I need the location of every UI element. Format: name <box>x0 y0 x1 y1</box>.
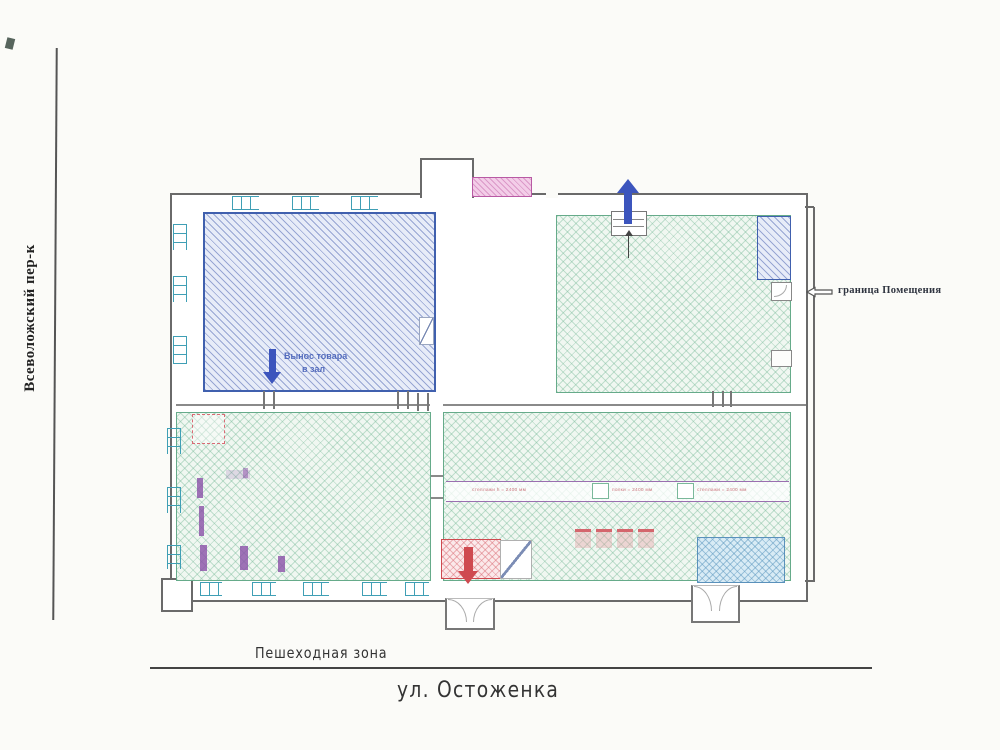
room-sales-top-right <box>556 215 791 393</box>
window-icon <box>173 224 187 250</box>
boundary-arrow-icon <box>806 286 834 298</box>
door-swing-arc <box>774 285 787 297</box>
furniture-glyph <box>278 556 285 572</box>
goods-exit-arrowhead <box>263 372 281 384</box>
kiosk-pink <box>472 177 532 197</box>
pedestrian-label: Пешеходная зона <box>255 644 387 662</box>
interior-wall <box>176 404 430 406</box>
furniture-glyph <box>200 545 207 571</box>
door-tick <box>407 391 409 409</box>
shelf-band-gap <box>677 483 694 499</box>
boundary-label: граница Помещения <box>838 285 941 296</box>
pedestrian-line <box>150 667 872 669</box>
scan-artifact <box>5 37 15 50</box>
door-icon <box>419 317 434 345</box>
street-label-bottom: ул. Остоженка <box>397 678 559 703</box>
window-icon <box>167 545 181 569</box>
window-icon <box>303 582 329 596</box>
window-icon <box>252 582 276 596</box>
window-icon <box>292 196 319 210</box>
door-leaf <box>500 540 532 579</box>
door-tick <box>273 391 275 409</box>
wall-step <box>805 206 814 208</box>
shelf-band-gap <box>592 483 609 499</box>
window-icon <box>167 487 181 513</box>
door-swing-arc <box>719 586 737 611</box>
entrance-arrow-red-head <box>458 571 478 584</box>
dashed-zone <box>192 414 225 444</box>
window-icon <box>362 582 387 596</box>
goods-exit-arrow <box>269 349 276 373</box>
fixture-box <box>617 529 633 548</box>
door-tick <box>263 391 265 409</box>
door-niche <box>771 282 792 301</box>
door-tick <box>427 393 429 411</box>
window-icon <box>173 336 187 364</box>
door-swing-arc <box>694 586 712 611</box>
door-niche <box>771 350 792 367</box>
wall-opening <box>546 189 558 198</box>
wall-step <box>805 580 814 582</box>
fixture-box <box>638 529 654 548</box>
zone-blue-bottom-right <box>697 537 785 583</box>
entrance-arrow-red <box>464 547 473 573</box>
street-label-left: Всеволожский пер-к <box>22 228 42 408</box>
door-swing-arc <box>473 599 492 622</box>
floor-plan-scan: Всеволожский пер-к Вынос товара в зал <box>0 0 1000 750</box>
exit-arrow-blue-head <box>617 179 639 193</box>
door-tick <box>397 391 399 409</box>
furniture-note <box>226 470 250 479</box>
entrance-vestibule <box>691 585 740 623</box>
interior-wall <box>443 404 806 406</box>
goods-exit-label2: в зал <box>302 364 325 374</box>
shelf-label: стеллажи h = 2400 мм <box>472 488 526 493</box>
window-icon <box>167 428 181 454</box>
exit-box-line <box>613 226 644 227</box>
vestibule-top <box>420 158 474 198</box>
door-tick <box>417 393 419 411</box>
wall-block-bottom-left <box>161 578 193 612</box>
window-icon <box>173 276 187 302</box>
exit-arrow-thin <box>628 234 629 258</box>
inner-room-blue <box>757 216 791 280</box>
window-icon <box>351 196 378 210</box>
shelf-label: стеллажи = 2400 мм <box>697 488 747 493</box>
furniture-glyph <box>197 478 203 498</box>
window-icon <box>200 582 222 596</box>
window-icon <box>232 196 259 210</box>
outer-wall-right <box>813 207 815 582</box>
window-icon <box>405 582 429 596</box>
door-tick <box>722 391 724 407</box>
furniture-glyph <box>199 506 204 536</box>
door-tick <box>712 391 714 407</box>
exit-arrow-thin-head <box>625 230 633 236</box>
door-tick <box>730 391 732 407</box>
street-edge-line <box>52 48 57 620</box>
shelf-label: полки = 2400 мм <box>612 488 652 493</box>
goods-exit-label: Вынос товара <box>284 351 347 361</box>
entrance-vestibule <box>445 598 495 630</box>
door-swing-arc <box>448 599 467 622</box>
fixture-box <box>596 529 612 548</box>
furniture-glyph <box>240 546 248 570</box>
fixture-box <box>575 529 591 548</box>
fixtures-row <box>575 529 657 546</box>
exit-arrow-blue <box>624 192 632 224</box>
